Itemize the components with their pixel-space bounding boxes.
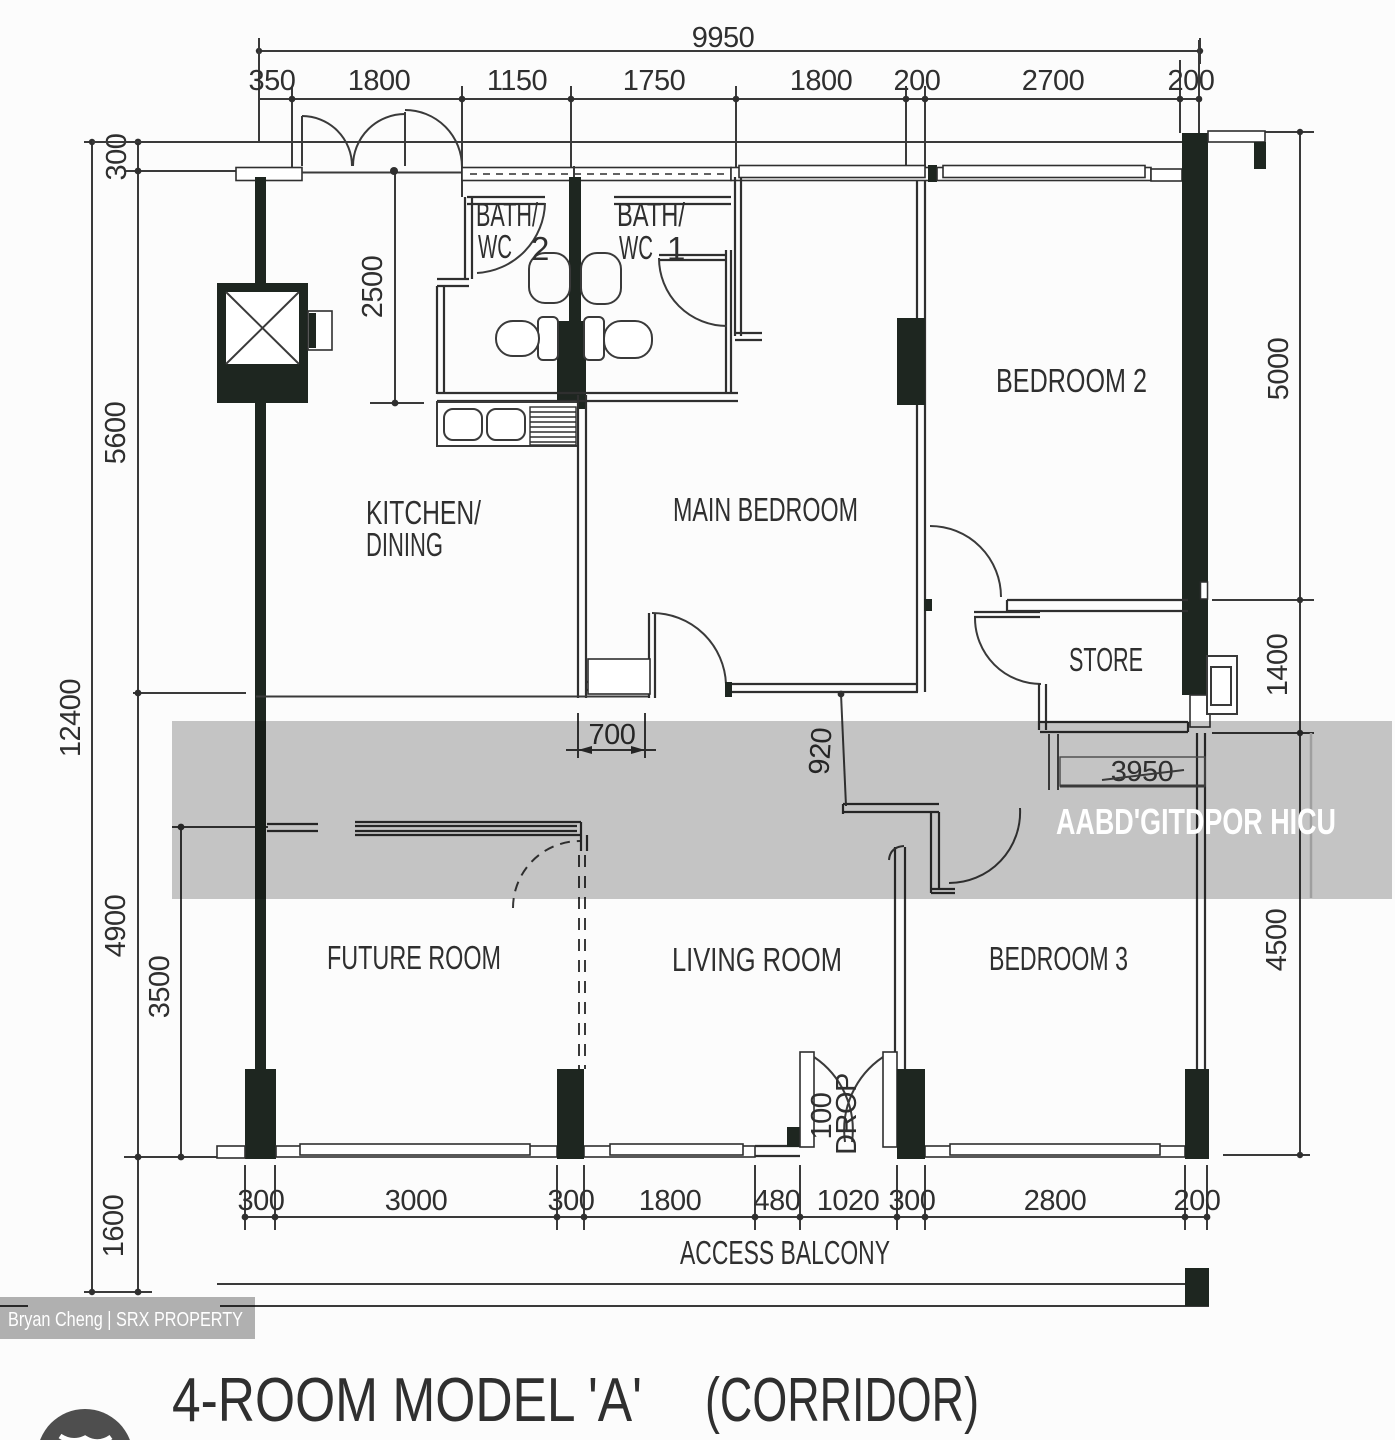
svg-text:300: 300 [889,1185,936,1217]
svg-text:STORE: STORE [1069,641,1143,678]
svg-text:4-ROOM MODEL 'A': 4-ROOM MODEL 'A' [172,1366,642,1435]
svg-text:200: 200 [894,65,941,97]
svg-text:MAIN BEDROOM: MAIN BEDROOM [673,491,858,528]
svg-text:1150: 1150 [487,65,547,97]
svg-text:Bryan Cheng | SRX PROPERTY: Bryan Cheng | SRX PROPERTY [8,1309,243,1331]
svg-text:9950: 9950 [692,22,755,54]
svg-text:1800: 1800 [348,65,411,97]
svg-text:350: 350 [249,65,296,97]
svg-text:1600: 1600 [98,1195,130,1258]
svg-text:5600: 5600 [100,402,132,465]
svg-text:5000: 5000 [1263,338,1295,401]
svg-text:FUTURE ROOM: FUTURE ROOM [327,939,501,976]
svg-text:BEDROOM 3: BEDROOM 3 [989,940,1128,977]
svg-text:1800: 1800 [639,1185,702,1217]
svg-text:2700: 2700 [1022,65,1085,97]
svg-text:DROP: DROP [831,1073,863,1155]
svg-text:2800: 2800 [1024,1185,1087,1217]
svg-text:12400: 12400 [55,679,87,757]
svg-text:1: 1 [667,230,685,267]
svg-text:200: 200 [1168,65,1215,97]
svg-text:200: 200 [1174,1185,1221,1217]
svg-text:BATH/: BATH/ [617,196,686,233]
svg-text:1750: 1750 [623,65,686,97]
svg-text:WC: WC [478,228,512,265]
svg-text:AABD'GITDPOR HICU: AABD'GITDPOR HICU [1056,801,1336,842]
svg-text:1400: 1400 [1262,634,1294,697]
svg-text:480: 480 [754,1185,801,1217]
svg-text:300: 300 [101,134,133,181]
svg-text:4500: 4500 [1261,909,1293,972]
svg-text:BEDROOM 2: BEDROOM 2 [996,362,1147,399]
svg-text:300: 300 [548,1185,595,1217]
svg-text:DINING: DINING [366,526,443,563]
svg-text:2500: 2500 [357,256,389,319]
svg-text:2: 2 [531,230,549,267]
svg-text:(CORRIDOR): (CORRIDOR) [705,1366,979,1435]
svg-text:WC: WC [619,229,653,266]
svg-text:1020: 1020 [817,1185,880,1217]
svg-text:1800: 1800 [790,65,853,97]
svg-text:3500: 3500 [144,956,176,1019]
svg-text:ACCESS BALCONY: ACCESS BALCONY [680,1234,890,1271]
svg-text:LIVING ROOM: LIVING ROOM [672,941,842,978]
svg-text:300: 300 [238,1185,285,1217]
svg-text:4900: 4900 [100,895,132,958]
svg-text:3000: 3000 [385,1185,448,1217]
